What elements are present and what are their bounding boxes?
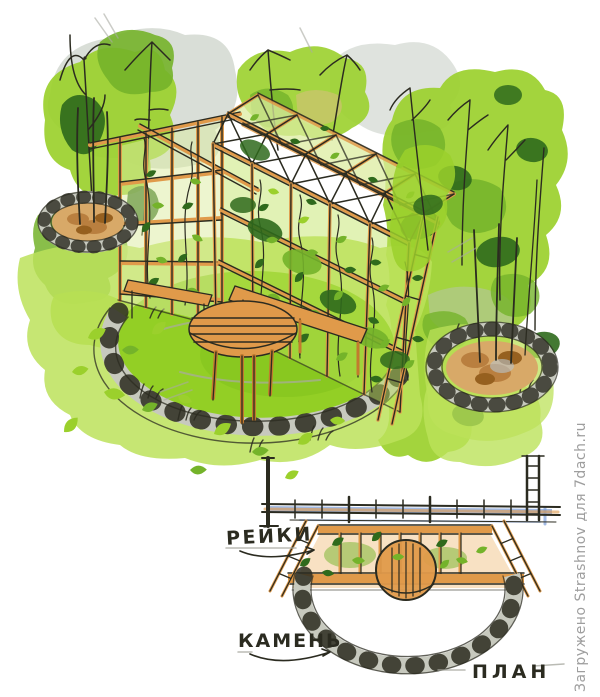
label-plan: ПЛАН bbox=[472, 661, 550, 683]
label-stone: КАМЕНЬ bbox=[238, 630, 343, 652]
garden-illustration: РЕЙКИ КАМЕНЬ ПЛАН Загружено Strashnov дл… bbox=[0, 0, 600, 697]
watermark-text: Загружено Strashnov для 7dach.ru bbox=[573, 422, 589, 692]
label-slats: РЕЙКИ bbox=[226, 522, 314, 550]
garden-sketch-canvas: РЕЙКИ КАМЕНЬ ПЛАН Загружено Strashnov дл… bbox=[0, 0, 600, 697]
